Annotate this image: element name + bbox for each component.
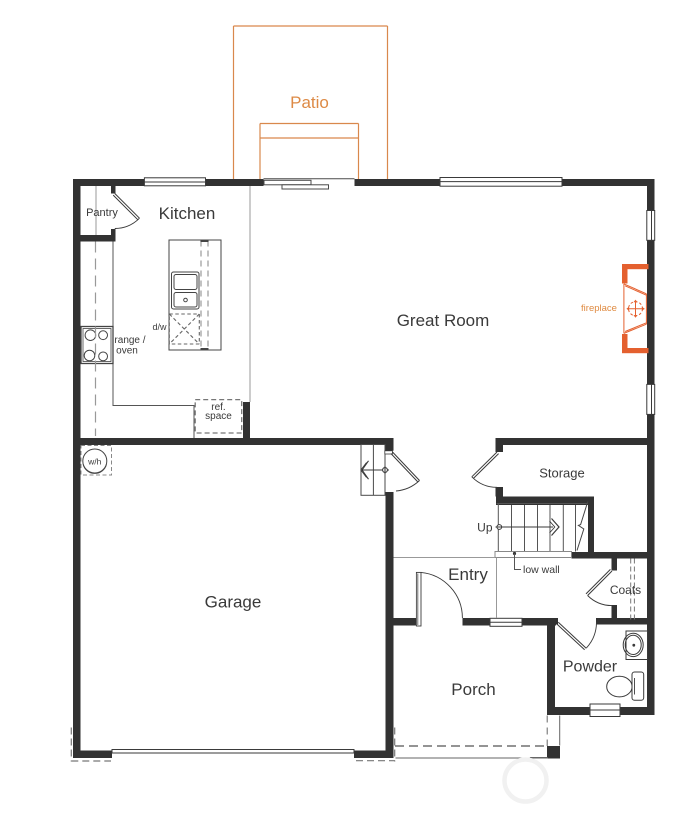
svg-text:Coats: Coats — [610, 583, 641, 597]
svg-text:range /: range / — [114, 335, 145, 346]
svg-text:low wall: low wall — [523, 564, 560, 576]
svg-text:space: space — [205, 411, 232, 422]
svg-text:Powder: Powder — [563, 659, 618, 676]
svg-text:Great Room: Great Room — [397, 311, 490, 330]
svg-text:Patio: Patio — [290, 93, 329, 112]
svg-text:w/h: w/h — [87, 457, 102, 467]
svg-text:Entry: Entry — [448, 565, 488, 584]
svg-text:Kitchen: Kitchen — [159, 204, 216, 223]
svg-text:oven: oven — [116, 346, 138, 357]
svg-text:Storage: Storage — [539, 466, 585, 481]
svg-text:Garage: Garage — [205, 593, 262, 612]
svg-text:Pantry: Pantry — [86, 207, 118, 219]
svg-text:d/w: d/w — [152, 322, 167, 332]
svg-text:Porch: Porch — [451, 680, 495, 699]
svg-text:fireplace: fireplace — [581, 303, 617, 314]
svg-text:Up: Up — [477, 521, 493, 535]
